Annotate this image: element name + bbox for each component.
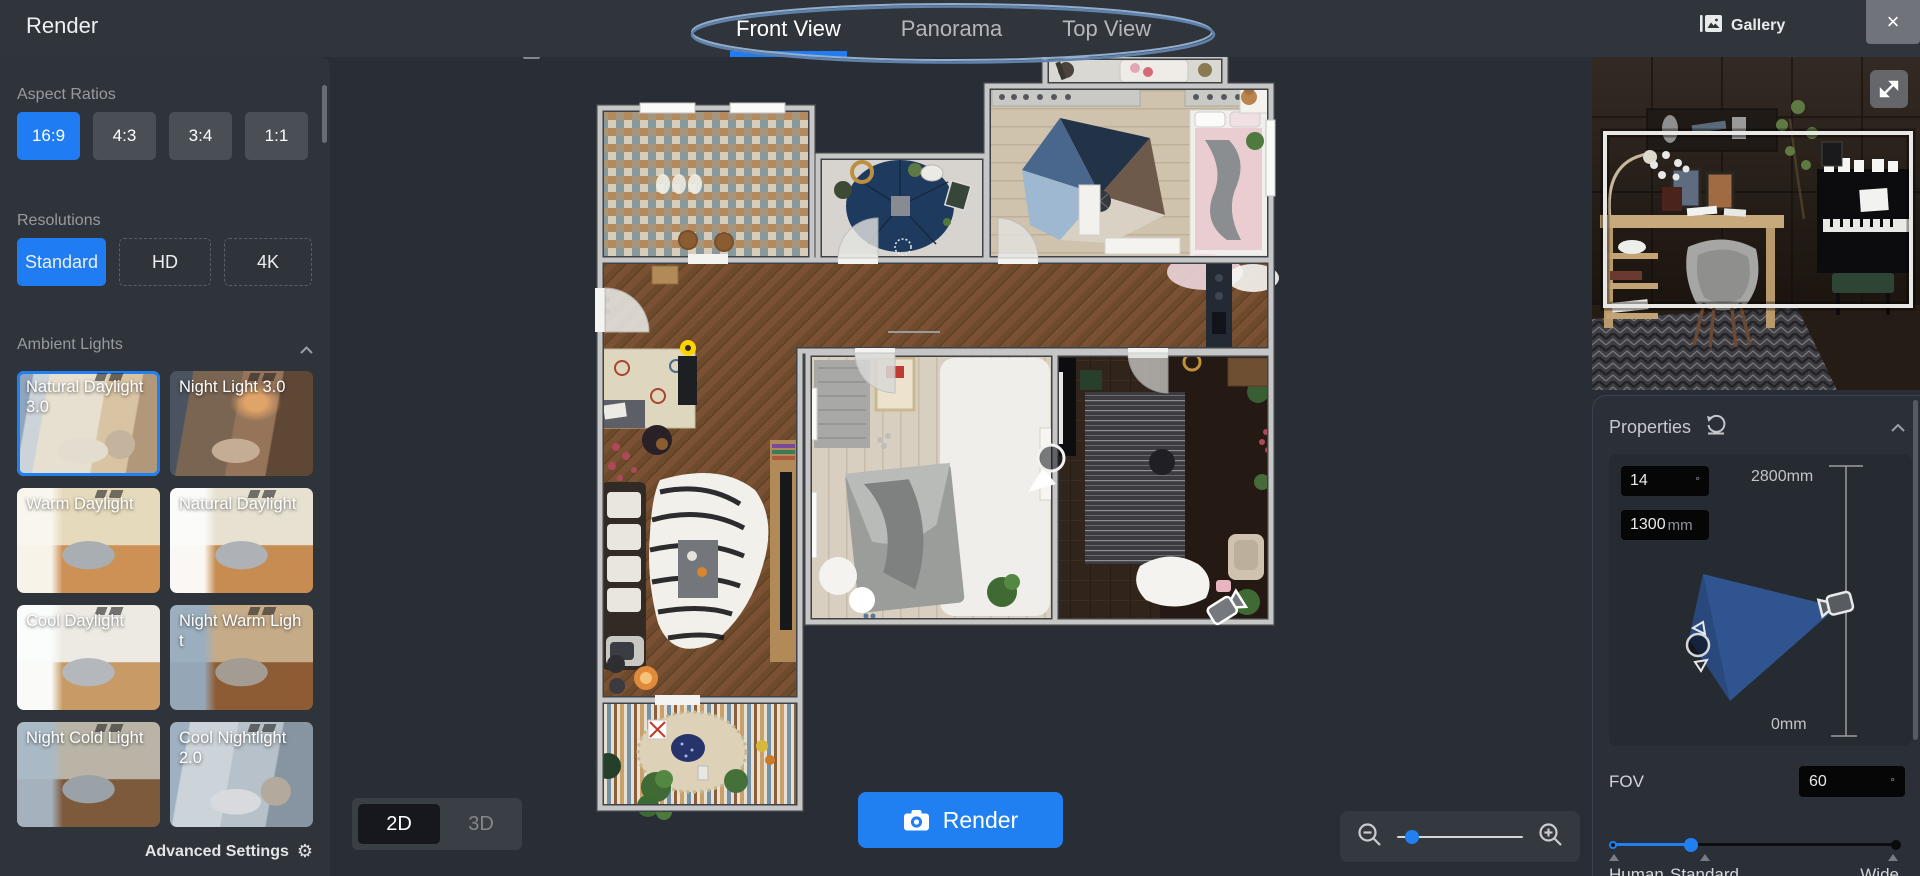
aspect-ratio-1-1[interactable]: 1:1: [245, 112, 308, 160]
ambient-light-night-light-3-0[interactable]: Night Light 3.0: [170, 371, 313, 476]
camera-height-widget: 14 ° 1300 mm 2800mm 0mm: [1609, 454, 1912, 746]
render-preview[interactable]: [1592, 57, 1920, 390]
toggle-3d[interactable]: 3D: [440, 804, 522, 844]
fov-slider-knob[interactable]: [1684, 838, 1698, 852]
ambient-light-label: Night Cold Light: [17, 722, 160, 756]
ambient-lights-label: Ambient Lights: [17, 336, 123, 354]
sidebar-scrollbar[interactable]: [322, 85, 327, 143]
aspect-ratio-3-4[interactable]: 3:4: [169, 112, 232, 160]
page-title: Render: [26, 13, 98, 39]
aspect-ratio-16-9[interactable]: 16:9: [17, 112, 80, 160]
tab-top-view[interactable]: Top View: [1056, 0, 1157, 57]
close-icon: ×: [1887, 9, 1900, 35]
zoom-out-icon[interactable]: [1356, 821, 1383, 853]
render-button-label: Render: [943, 807, 1018, 834]
reset-icon[interactable]: [1705, 414, 1727, 441]
ambient-light-label: Night Light 3.0: [170, 371, 313, 405]
resolution-standard[interactable]: Standard: [17, 238, 106, 286]
header-bar: Render Front ViewPanoramaTop View Galler…: [0, 0, 1920, 57]
ambient-light-warm-daylight[interactable]: Warm Daylight: [17, 488, 160, 593]
camera-handle-icon[interactable]: [1818, 591, 1854, 617]
right-panel-scrollbar[interactable]: [1913, 400, 1918, 740]
ambient-light-natural-daylight-3-0[interactable]: Natural Daylight 3.0: [17, 371, 160, 476]
close-button[interactable]: ×: [1866, 0, 1920, 44]
gallery-icon: [1700, 14, 1722, 38]
render-dialog: { "app": { "title": "Render" }, "header"…: [0, 0, 1920, 876]
chevron-up-icon[interactable]: [300, 341, 313, 359]
fov-input[interactable]: 60 °: [1799, 766, 1905, 797]
resolution-options: StandardHD4K: [17, 238, 312, 286]
ambient-light-label: Night Warm Light: [170, 605, 313, 659]
ambient-light-label: Natural Daylight: [170, 488, 313, 522]
ambient-light-cool-nightlight-2-0[interactable]: Cool Nightlight 2.0: [170, 722, 313, 827]
resolution-4k[interactable]: 4K: [224, 238, 312, 286]
render-button[interactable]: Render: [858, 792, 1063, 848]
gear-icon: ⚙: [297, 843, 313, 861]
ambient-light-label: Natural Daylight 3.0: [17, 371, 160, 425]
tab-front-view[interactable]: Front View: [730, 0, 847, 57]
active-tab-underline: [730, 51, 847, 57]
ambient-light-night-cold-light[interactable]: Night Cold Light: [17, 722, 160, 827]
expand-icon[interactable]: [1870, 70, 1908, 108]
aspect-ratios-label: Aspect Ratios: [17, 86, 116, 104]
aspect-ratio-4-3[interactable]: 4:3: [93, 112, 156, 160]
aspect-ratio-options: 16:94:33:41:1: [17, 112, 308, 160]
resolutions-label: Resolutions: [17, 212, 101, 230]
ambient-light-cool-daylight[interactable]: Cool Daylight: [17, 605, 160, 710]
fov-label: FOV: [1609, 772, 1644, 792]
right-panel: Properties 14 ° 1300: [1592, 57, 1920, 876]
fov-label-human: Human: [1609, 865, 1664, 876]
dimension-toggle: 2D3D: [352, 798, 522, 850]
zoom-slider-knob[interactable]: [1405, 830, 1419, 844]
zoom-in-icon[interactable]: [1537, 821, 1564, 853]
resolution-hd[interactable]: HD: [119, 238, 211, 286]
toggle-2d[interactable]: 2D: [358, 804, 440, 844]
zoom-controls: [1340, 811, 1580, 862]
fov-label-standard: Standard: [1670, 865, 1739, 876]
ambient-light-label: Cool Daylight: [17, 605, 160, 639]
ambient-light-label: Warm Daylight: [17, 488, 160, 522]
camera-marker-yellow[interactable]: [680, 340, 696, 356]
advanced-settings-label: Advanced Settings: [145, 843, 289, 861]
ambient-light-night-warm-light[interactable]: Night Warm Light: [170, 605, 313, 710]
advanced-settings-button[interactable]: Advanced Settings ⚙: [0, 843, 313, 861]
floor-plan[interactable]: [580, 40, 1300, 830]
render-settings-sidebar: Aspect Ratios 16:94:33:41:1 Resolutions …: [0, 57, 330, 876]
view-tabs: Front ViewPanoramaTop View: [730, 0, 1157, 57]
zoom-slider[interactable]: [1397, 827, 1523, 847]
gallery-label: Gallery: [1731, 17, 1785, 35]
fov-label-wide: Wide: [1860, 865, 1899, 876]
floor-pattern-room: [600, 108, 812, 260]
preview-scene: [1592, 57, 1920, 390]
fov-slider[interactable]: Human Standard Wide: [1609, 838, 1901, 876]
tab-panorama[interactable]: Panorama: [895, 0, 1009, 57]
gallery-button[interactable]: Gallery: [1700, 14, 1785, 38]
ambient-light-options: Natural Daylight 3.0Night Light 3.0Warm …: [17, 371, 317, 827]
properties-panel: Properties 14 ° 1300: [1592, 395, 1920, 876]
properties-title: Properties: [1609, 417, 1691, 438]
collapse-icon[interactable]: [1891, 419, 1905, 437]
ambient-light-natural-daylight[interactable]: Natural Daylight: [170, 488, 313, 593]
ambient-light-label: Cool Nightlight 2.0: [170, 722, 313, 776]
camera-shutter-icon: [903, 809, 930, 832]
